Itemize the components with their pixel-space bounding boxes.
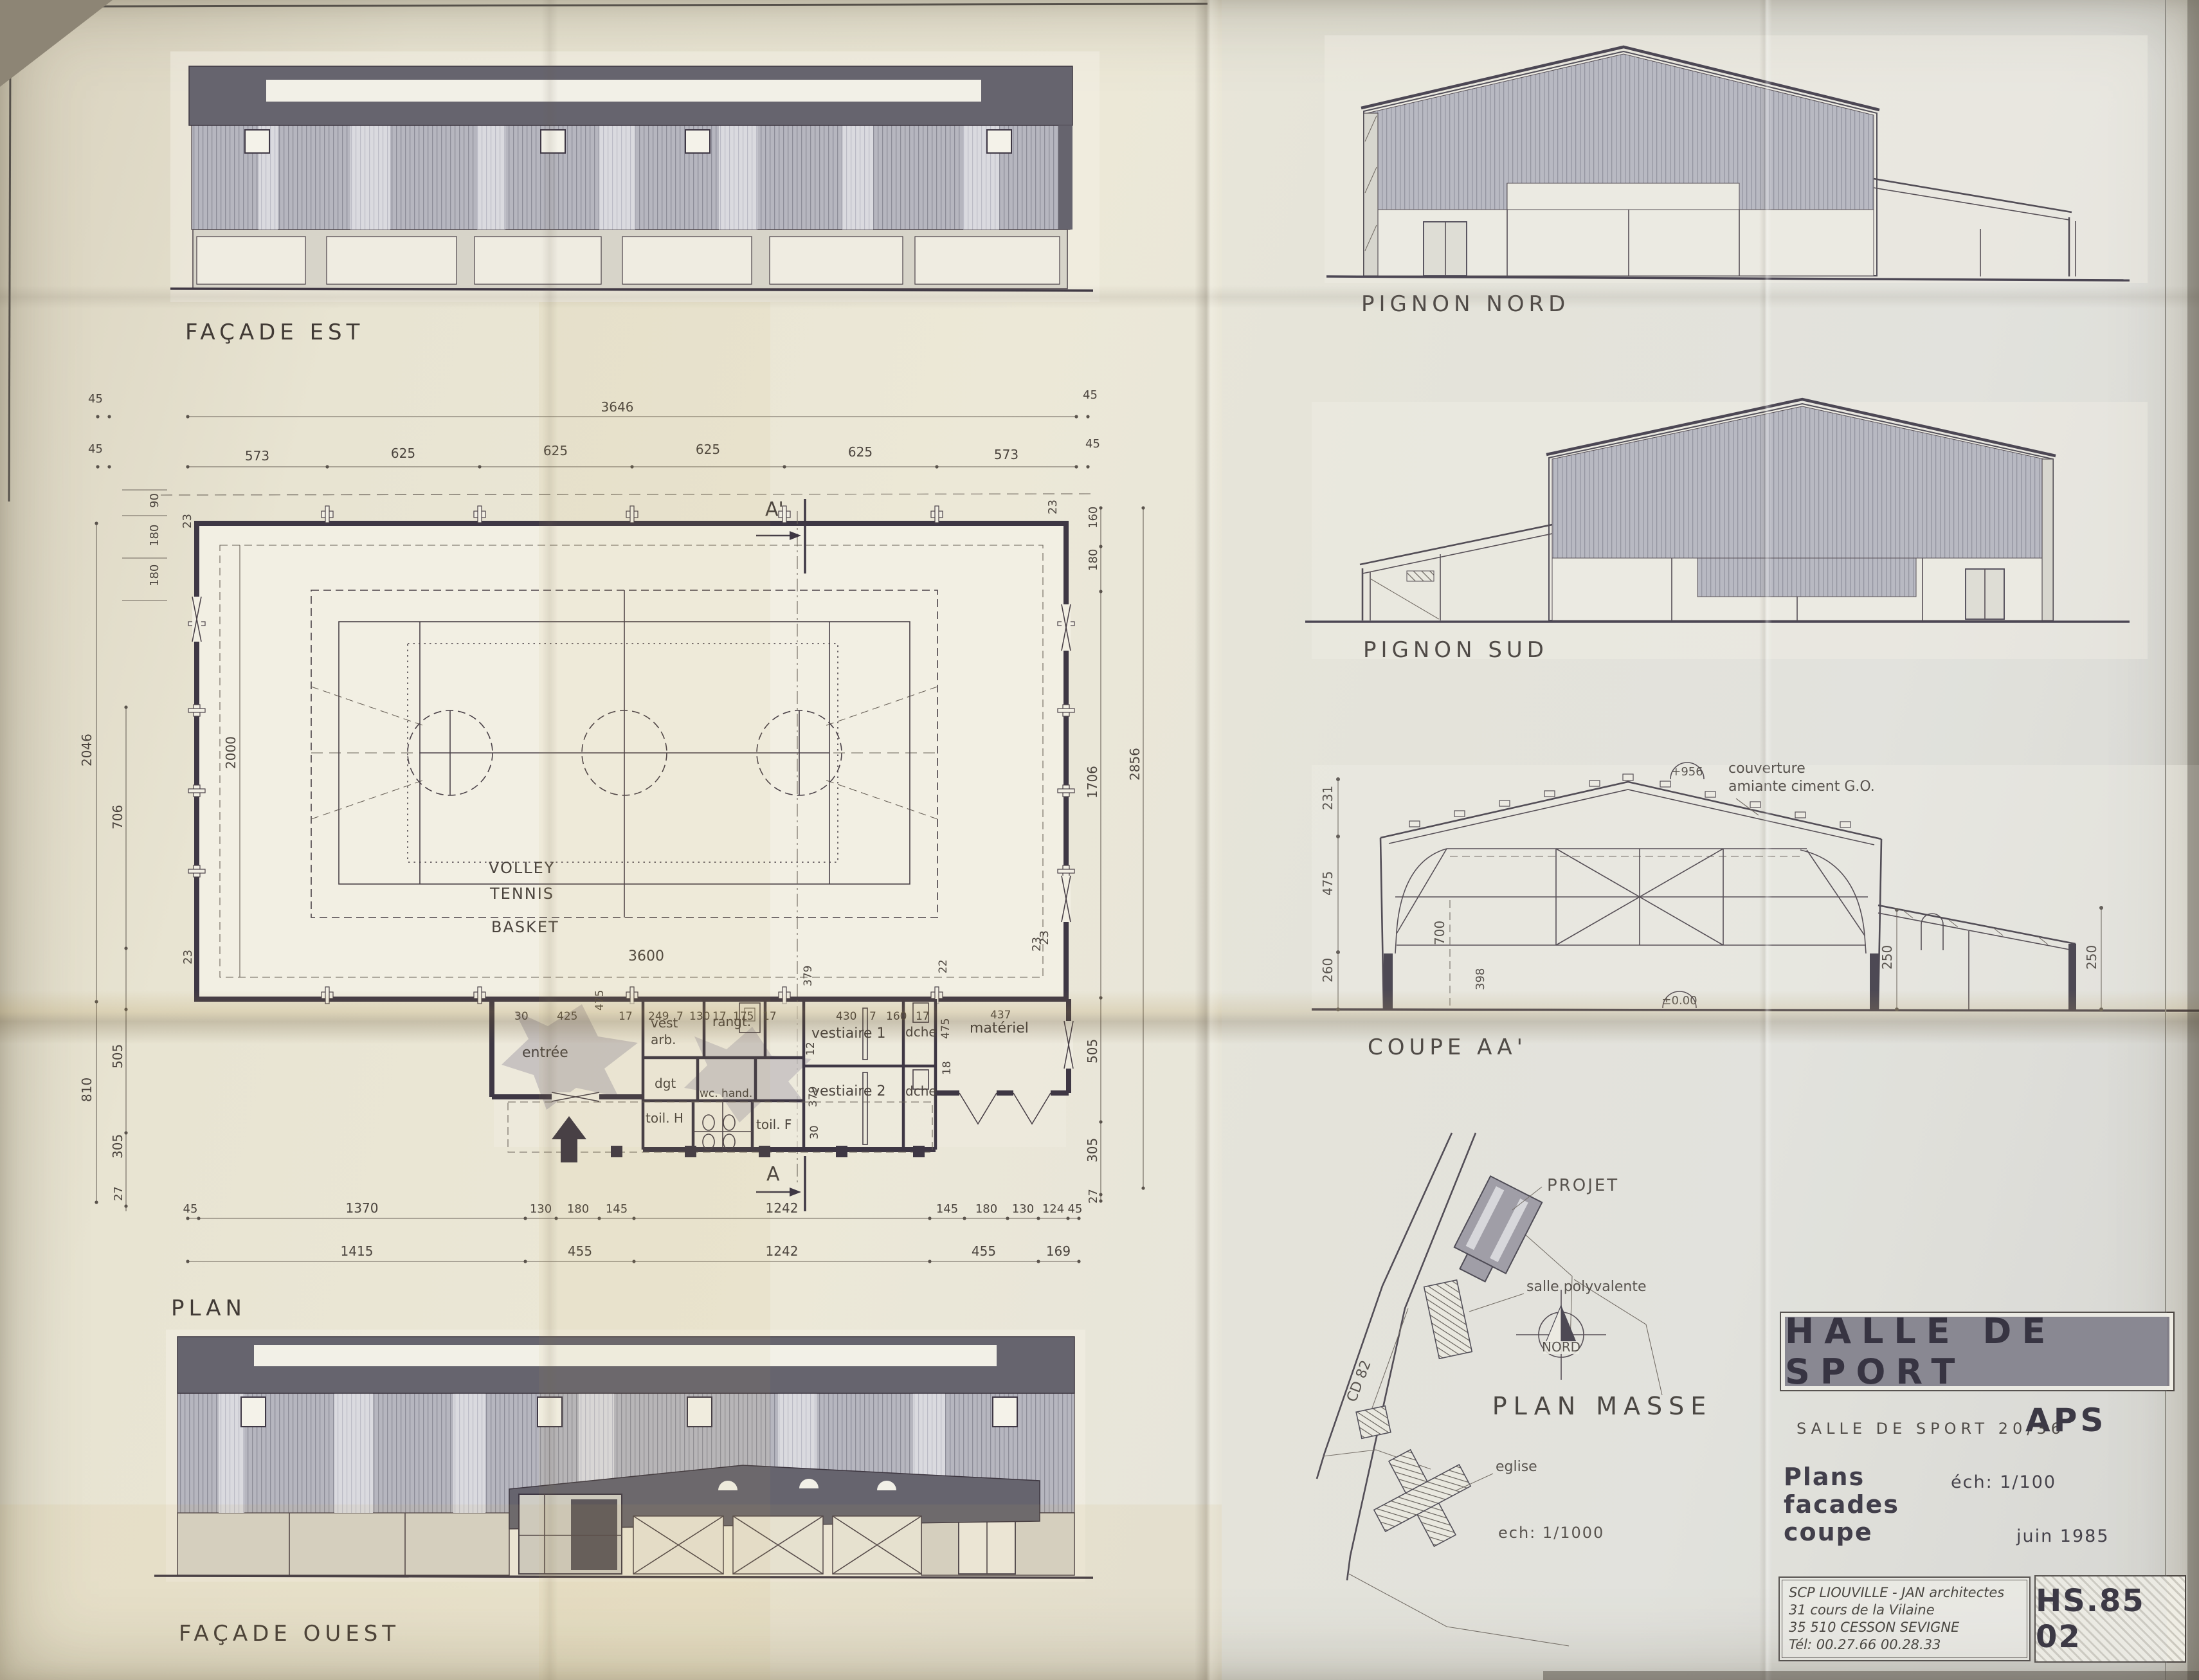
roof-note: couverture xyxy=(1728,761,1805,777)
dim-label: 23 xyxy=(181,514,194,528)
dim-label: 475 xyxy=(593,990,606,1011)
room-label: dgt xyxy=(655,1076,676,1091)
architect-firm: SCP LIOUVILLE - JAN architectes xyxy=(1789,1584,2020,1602)
dim-label: 3646 xyxy=(601,399,634,415)
drawing-reference-box: HS.85 02 xyxy=(2034,1575,2186,1663)
dim-label: 30 xyxy=(808,1125,821,1139)
coupe-dim: 398 xyxy=(1474,968,1487,990)
plan-masse-annotation: eglise xyxy=(1496,1459,1537,1475)
room-label: dche xyxy=(905,1083,937,1099)
coupe-dim: 260 xyxy=(1320,958,1335,982)
dim-label: 1415 xyxy=(341,1243,374,1259)
north-compass: NORD xyxy=(1516,1290,1606,1380)
dim-label: 379 xyxy=(807,1087,820,1107)
room-label: vestiaire 1 xyxy=(811,1025,885,1042)
ground-level: ±0.00 xyxy=(1661,994,1697,1007)
project-title: HALLE DE SPORT xyxy=(1785,1311,2169,1392)
dim-label: 180 xyxy=(567,1202,589,1216)
architect-phone: Tél: 00.27.66 00.28.33 xyxy=(1789,1636,2020,1654)
dim-label: 17 xyxy=(763,1010,777,1023)
drawing-date: juin 1985 xyxy=(2016,1526,2110,1546)
dim-label: 430 xyxy=(836,1010,856,1023)
dim-label: 45 xyxy=(1085,437,1100,451)
room-label: arb. xyxy=(651,1032,676,1047)
blueprint-sheet: FAÇADE EST PIGNON NORD xyxy=(0,0,2199,1680)
plan-drawing: 3646 573 625 625 625 625 573 45 45 45 45 xyxy=(79,388,1145,1321)
north-label: NORD xyxy=(1542,1339,1580,1355)
dim-label: 18 xyxy=(941,1061,954,1075)
coupe-dim: 475 xyxy=(1320,871,1335,896)
ridge-level: +956 xyxy=(1671,765,1703,779)
dim-label: 130 xyxy=(689,1010,710,1023)
dim-label: 505 xyxy=(110,1044,125,1069)
pignon-sud-label: PIGNON SUD xyxy=(1363,637,1548,663)
dim-label: 573 xyxy=(245,448,269,464)
dim-label: 1242 xyxy=(766,1200,799,1216)
dim-label: 23 xyxy=(1038,930,1051,945)
roof-note: amiante ciment G.O. xyxy=(1728,779,1875,795)
plan-masse-scale: ech: 1/1000 xyxy=(1498,1524,1604,1542)
facade-est-label: FAÇADE EST xyxy=(185,320,364,345)
dim-label: 23 xyxy=(181,950,195,964)
dim-label: 145 xyxy=(606,1202,628,1216)
facade-est-drawing: FAÇADE EST xyxy=(170,51,1099,345)
dim-label: 3600 xyxy=(628,948,664,964)
dim-label: 27 xyxy=(112,1186,125,1201)
dim-label: 2856 xyxy=(1127,748,1143,781)
dim-label: 505 xyxy=(1085,1039,1100,1063)
dim-label: 249 xyxy=(648,1010,669,1023)
dim-label: 1706 xyxy=(1085,766,1100,799)
architect-address: 31 cours de la Vilaine xyxy=(1789,1602,2020,1619)
dim-label: 27 xyxy=(1087,1189,1100,1204)
dim-label: 379 xyxy=(802,966,815,986)
title-banner: HALLE DE SPORT xyxy=(1780,1312,2175,1391)
pignon-nord-label: PIGNON NORD xyxy=(1361,291,1570,317)
dim-label: 45 xyxy=(1068,1202,1083,1216)
pignon-sud-drawing: PIGNON SUD xyxy=(1305,399,2148,663)
dim-label: 2046 xyxy=(79,734,95,766)
document-item: facades xyxy=(1784,1491,1899,1519)
dim-label: 455 xyxy=(568,1243,592,1259)
dim-label: 17 xyxy=(712,1010,727,1023)
section-marker: A' xyxy=(765,498,784,521)
dim-label: 475 xyxy=(939,1018,952,1039)
document-item: Plans xyxy=(1784,1463,1899,1491)
dim-label: 180 xyxy=(1087,549,1100,571)
small-building xyxy=(1356,1406,1391,1439)
dim-label: 305 xyxy=(110,1134,125,1159)
facade-ouest-drawing: FAÇADE OUEST xyxy=(154,1330,1093,1647)
court-label: VOLLEY xyxy=(489,859,555,877)
dim-label: 706 xyxy=(110,805,125,829)
dim-label: 455 xyxy=(972,1243,996,1259)
facade-ouest-label: FAÇADE OUEST xyxy=(179,1621,400,1647)
plan-masse-label: PLAN MASSE xyxy=(1492,1392,1713,1420)
document-list: Plans facades coupe xyxy=(1784,1463,1899,1546)
architect-city: 35 510 CESSON SEVIGNE xyxy=(1789,1619,2020,1636)
dim-label: 180 xyxy=(975,1202,997,1216)
eglise-building xyxy=(1357,1433,1488,1564)
coupe-label: COUPE AA' xyxy=(1368,1034,1527,1060)
dim-label: 1242 xyxy=(766,1243,799,1259)
coupe-dim: 700 xyxy=(1432,921,1447,945)
dim-label: 45 xyxy=(1083,388,1098,402)
room-label: matériel xyxy=(970,1020,1029,1036)
dim-label: 625 xyxy=(696,442,720,457)
projet-building xyxy=(1447,1176,1542,1288)
plan-label: PLAN xyxy=(171,1296,246,1321)
plan-masse-annotation: PROJET xyxy=(1547,1176,1619,1195)
dim-label: 180 xyxy=(148,525,161,546)
dim-label: 17 xyxy=(619,1010,633,1023)
dim-label: 180 xyxy=(148,565,161,586)
dim-label: 130 xyxy=(530,1202,552,1216)
drawing-scale: éch: 1/100 xyxy=(1951,1472,2056,1492)
dim-label: 625 xyxy=(848,444,873,460)
dim-label: 573 xyxy=(994,447,1018,462)
court-label: BASKET xyxy=(491,918,559,936)
phase-label: APS xyxy=(2025,1402,2106,1439)
dim-label: 22 xyxy=(937,959,950,973)
title-block: HALLE DE SPORT SALLE DE SPORT 20/36 APS … xyxy=(1773,1306,2190,1672)
document-item: coupe xyxy=(1784,1519,1899,1546)
dim-label: 7 xyxy=(676,1010,683,1023)
room-label: dche xyxy=(905,1024,937,1040)
room-label: toil. F xyxy=(756,1117,792,1132)
dim-label: 45 xyxy=(183,1202,198,1216)
dim-label: 7 xyxy=(869,1010,876,1023)
dim-label: 305 xyxy=(1085,1138,1100,1162)
section-marker: A xyxy=(766,1163,780,1186)
architect-box: SCP LIOUVILLE - JAN architectes 31 cours… xyxy=(1778,1576,2031,1661)
room-label: wc. hand. xyxy=(700,1087,752,1100)
pignon-nord-drawing: PIGNON NORD xyxy=(1325,35,2148,317)
plan-masse-annotation: salle polyvalente xyxy=(1526,1279,1647,1295)
coupe-dim: 250 xyxy=(1879,945,1895,970)
dim-label: 2000 xyxy=(223,736,239,769)
dim-label: 425 xyxy=(557,1010,577,1023)
dim-label: 45 xyxy=(88,392,103,406)
plan-masse-drawing: PROJET salle polyvalente NORD PLAN MASSE… xyxy=(1317,1133,1712,1646)
drawing-reference: HS.85 02 xyxy=(2036,1583,2185,1655)
dim-label: 124 xyxy=(1042,1202,1064,1216)
room-label: entrée xyxy=(522,1045,568,1061)
dim-label: 23 xyxy=(1046,500,1060,514)
dim-label: 17 xyxy=(916,1010,930,1023)
dim-label: 437 xyxy=(990,1009,1011,1022)
room-label: vestiaire 2 xyxy=(811,1083,885,1099)
dim-label: 160 xyxy=(1087,507,1100,528)
dim-label: 625 xyxy=(391,446,415,461)
salle-polyvalente-building xyxy=(1424,1280,1472,1359)
dim-label: 810 xyxy=(79,1078,95,1102)
dim-label: 12 xyxy=(804,1042,817,1056)
dim-label: 1370 xyxy=(346,1200,379,1216)
dim-label: 169 xyxy=(1046,1243,1071,1259)
dim-label: 130 xyxy=(1012,1202,1034,1216)
dim-label: 625 xyxy=(543,443,568,458)
braced-panels xyxy=(633,1516,921,1574)
dim-label: 145 xyxy=(936,1202,958,1216)
dim-label: 45 xyxy=(88,442,103,456)
dim-label: 175 xyxy=(733,1010,754,1023)
room-label: toil. H xyxy=(646,1110,683,1126)
court-label: TENNIS xyxy=(489,885,554,903)
coupe-dim: 250 xyxy=(2084,945,2099,970)
coupe-dim: 231 xyxy=(1320,786,1335,810)
dim-label: 160 xyxy=(886,1010,907,1023)
dim-label: 90 xyxy=(148,493,161,508)
dim-label: 30 xyxy=(514,1010,529,1023)
coupe-drawing: 231 475 260 700 398 250 250 +956 couvert… xyxy=(1312,761,2199,1060)
